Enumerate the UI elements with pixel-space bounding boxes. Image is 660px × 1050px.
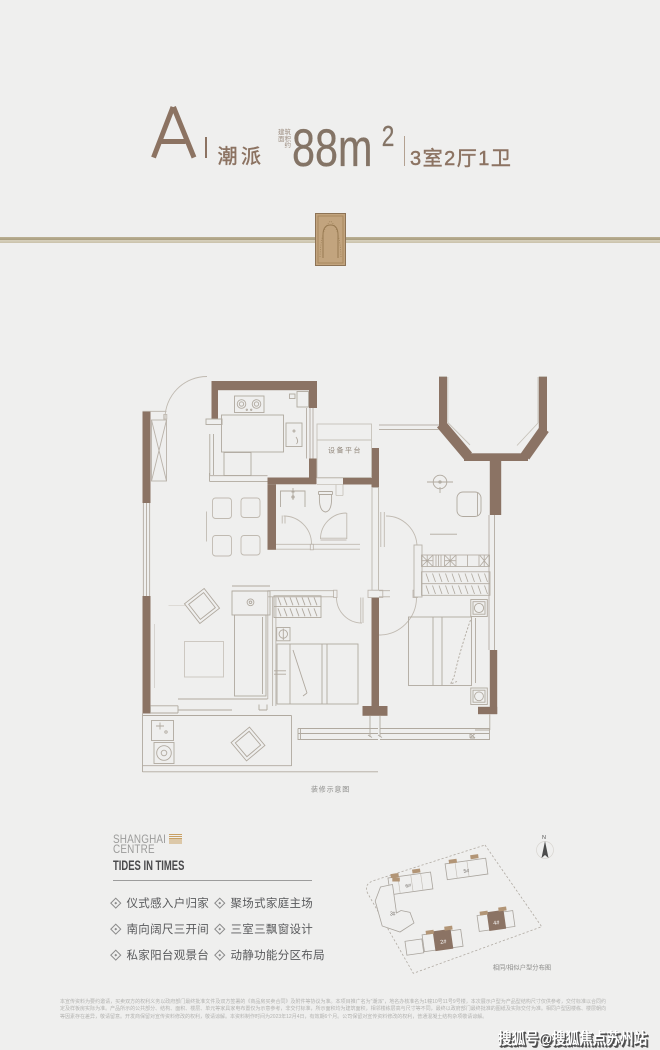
svg-text:相同/相似户型分布图: 相同/相似户型分布图: [493, 963, 551, 972]
svg-text:设备平台: 设备平台: [328, 446, 362, 455]
svg-text:装修示意图: 装修示意图: [311, 785, 350, 794]
svg-text:5#: 5#: [463, 868, 470, 875]
svg-text:6#: 6#: [405, 883, 412, 890]
svg-text:3#: 3#: [390, 912, 396, 918]
svg-text:N: N: [542, 835, 546, 841]
